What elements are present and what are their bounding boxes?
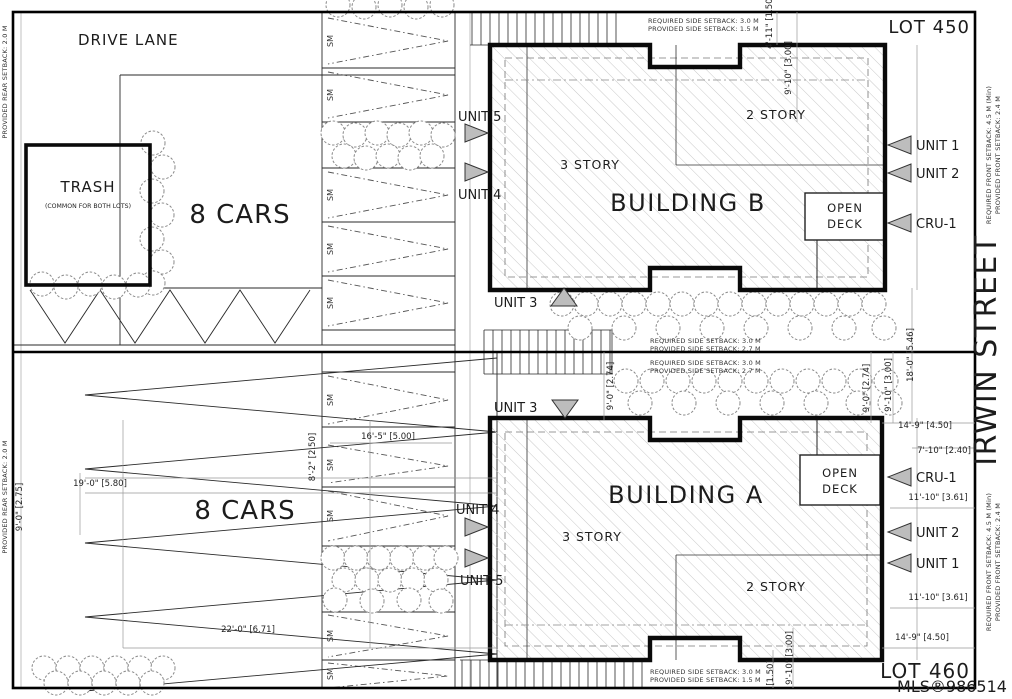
bush bbox=[365, 121, 389, 145]
building-b-3story: 3 STORY bbox=[560, 157, 620, 172]
unit-5-a-label: UNIT 5 bbox=[460, 574, 503, 589]
bush bbox=[822, 369, 846, 393]
bottom-walk-hatch bbox=[462, 660, 642, 688]
bush bbox=[332, 144, 356, 168]
setback-mid-lower-required: REQUIRED SIDE SETBACK: 3.0 M bbox=[650, 359, 761, 367]
bush bbox=[397, 588, 421, 612]
bush bbox=[832, 316, 856, 340]
dim-right-14-9-bottom: 14'-9" [4.50] bbox=[895, 633, 949, 643]
bush bbox=[116, 671, 140, 695]
building-b-deck-deck: DECK bbox=[827, 217, 863, 231]
building-a-deck-open: OPEN bbox=[822, 466, 858, 480]
bush bbox=[68, 671, 92, 695]
bush bbox=[378, 568, 402, 592]
bush bbox=[150, 203, 174, 227]
bush bbox=[646, 292, 670, 316]
bush bbox=[44, 671, 68, 695]
bush bbox=[622, 292, 646, 316]
bush bbox=[343, 123, 367, 147]
bush bbox=[760, 391, 784, 415]
irwin-street-label: IRWIN STREET bbox=[969, 234, 1004, 465]
dim-park-22-0: 22'-0" [6.71] bbox=[221, 625, 275, 635]
dim-right-18-0: 18'-0" [5.46] bbox=[906, 328, 916, 382]
bush bbox=[54, 275, 78, 299]
bush bbox=[718, 292, 742, 316]
bush bbox=[141, 131, 165, 155]
bush bbox=[413, 546, 437, 570]
setback-mid-upper-provided: PROVIDED SIDE SETBACK: 2.7 M bbox=[650, 345, 761, 353]
bush bbox=[367, 546, 391, 570]
bush bbox=[862, 292, 886, 316]
sm-stall-label: SM bbox=[326, 510, 335, 522]
bush bbox=[670, 292, 694, 316]
setback-mid-upper-required: REQUIRED SIDE SETBACK: 3.0 M bbox=[650, 337, 761, 345]
bush bbox=[140, 179, 164, 203]
setback-front-bottom-required: REQUIRED FRONT SETBACK: 4.5 M (Min) bbox=[985, 493, 993, 631]
bush bbox=[429, 589, 453, 613]
bush bbox=[612, 316, 636, 340]
building-a-footprint bbox=[490, 418, 882, 660]
dim-right-9-0: 9'-0" [2.74] bbox=[862, 364, 872, 412]
bush bbox=[344, 546, 368, 570]
sm-stall-label: SM bbox=[326, 394, 335, 406]
dim-right-14-9-top: 14'-9" [4.50] bbox=[898, 421, 952, 431]
setback-front-top-required: REQUIRED FRONT SETBACK: 4.5 M (Min) bbox=[985, 86, 993, 224]
unit-3-a-label: UNIT 3 bbox=[494, 401, 537, 416]
cru-1-b-label: CRU-1 bbox=[916, 217, 957, 232]
building-a-deck-deck: DECK bbox=[822, 482, 858, 496]
bush bbox=[323, 588, 347, 612]
bush bbox=[404, 0, 428, 19]
dim-park-19-0: 19'-0" [5.80] bbox=[73, 479, 127, 489]
dim-stall-16-5: 16'-5" [5.00] bbox=[361, 432, 415, 442]
sm-stall-label: SM bbox=[326, 459, 335, 471]
bush bbox=[804, 391, 828, 415]
bush bbox=[628, 391, 652, 415]
bush bbox=[431, 123, 455, 147]
unit-2-a-label: UNIT 2 bbox=[916, 526, 959, 541]
building-a-name: BUILDING A bbox=[608, 481, 764, 509]
bush bbox=[568, 316, 592, 340]
bush bbox=[387, 123, 411, 147]
bush bbox=[321, 546, 345, 570]
bush bbox=[352, 0, 376, 19]
site-plan-page: DRIVE LANE LOT 450 LOT 460 IRWIN STREET … bbox=[0, 0, 1012, 699]
setback-mid-lower-provided: PROVIDED SIDE SETBACK: 2.7 M bbox=[650, 367, 761, 375]
dim-right-11-10-bottom: 11'-10" [3.61] bbox=[908, 593, 967, 603]
setback-front-top-provided: PROVIDED FRONT SETBACK: 2.4 M bbox=[994, 96, 1002, 214]
building-b-footprint bbox=[490, 45, 885, 290]
bush bbox=[814, 292, 838, 316]
sm-stall-label: SM bbox=[326, 630, 335, 642]
bush bbox=[360, 589, 384, 613]
setback-bottom-required: REQUIRED SIDE SETBACK: 3.0 M bbox=[650, 668, 761, 676]
bush bbox=[140, 227, 164, 251]
drive-lane-label: DRIVE LANE bbox=[78, 31, 179, 49]
dim-bottom-a: [1.50] bbox=[766, 660, 776, 686]
bush bbox=[770, 369, 794, 393]
sm-stall-label: SM bbox=[326, 243, 335, 255]
unit-3-b-label: UNIT 3 bbox=[494, 296, 537, 311]
bush bbox=[424, 568, 448, 592]
bush bbox=[694, 292, 718, 316]
unit-4-a-label: UNIT 4 bbox=[456, 503, 499, 518]
unit-2-b-label: UNIT 2 bbox=[916, 167, 959, 182]
dim-right-7-10: 7'-10" [2.40] bbox=[917, 446, 971, 456]
bush bbox=[355, 568, 379, 592]
building-b-name: BUILDING B bbox=[610, 189, 766, 217]
sm-stall-label: SM bbox=[326, 297, 335, 309]
bush bbox=[434, 546, 458, 570]
dim-top-a: 4'-11" [1.50] bbox=[765, 0, 775, 49]
dim-mid-stairs: 9'-0" [2.74] bbox=[606, 362, 616, 410]
sm-stall-label: SM bbox=[326, 668, 335, 680]
bush bbox=[409, 121, 433, 145]
cars-bottom-label: 8 CARS bbox=[194, 496, 295, 526]
dim-bottom-b: 9'-10" [3.00] bbox=[785, 631, 795, 685]
sm-stall-label: SM bbox=[326, 89, 335, 101]
building-b-deck-open: OPEN bbox=[827, 201, 863, 215]
dim-top-b: 9'-10" [3.00] bbox=[784, 41, 794, 95]
bush bbox=[376, 144, 400, 168]
lot-450-label: LOT 450 bbox=[888, 17, 970, 38]
dim-left-9-0: 9'-0" [2.75] bbox=[15, 483, 25, 531]
bush bbox=[92, 671, 116, 695]
bush bbox=[354, 146, 378, 170]
setback-bottom-provided: PROVIDED SIDE SETBACK: 1.5 M bbox=[650, 676, 761, 684]
bush bbox=[872, 316, 896, 340]
bush bbox=[150, 250, 174, 274]
bush bbox=[838, 292, 862, 316]
bush bbox=[742, 292, 766, 316]
mls-watermark: MLS®986514 bbox=[897, 677, 1007, 696]
bush bbox=[151, 155, 175, 179]
bush bbox=[796, 369, 820, 393]
building-b-2story: 2 STORY bbox=[746, 107, 806, 122]
cars-top-label: 8 CARS bbox=[189, 200, 290, 230]
dim-right-11-10-top: 11'-10" [3.61] bbox=[908, 493, 967, 503]
bush bbox=[321, 121, 345, 145]
bush bbox=[766, 292, 790, 316]
bush bbox=[102, 275, 126, 299]
bush bbox=[672, 391, 696, 415]
sm-stall-label: SM bbox=[326, 189, 335, 201]
bush bbox=[788, 316, 812, 340]
setback-top-provided: PROVIDED SIDE SETBACK: 1.5 M bbox=[648, 25, 759, 33]
building-a-3story: 3 STORY bbox=[562, 529, 622, 544]
dim-stall-8-2: 8'-2" [2.50] bbox=[308, 433, 318, 481]
unit-1-a-label: UNIT 1 bbox=[916, 557, 959, 572]
unit-5-b-label: UNIT 5 bbox=[458, 110, 501, 125]
setback-rear-top: PROVIDED REAR SETBACK: 2.0 M bbox=[1, 25, 9, 138]
bush bbox=[398, 146, 422, 170]
bush bbox=[140, 671, 164, 695]
site-plan-drawing: DRIVE LANE LOT 450 LOT 460 IRWIN STREET … bbox=[0, 0, 1012, 699]
trash-enclosure-fill bbox=[26, 145, 150, 285]
cru-1-a-label: CRU-1 bbox=[916, 471, 957, 486]
building-a-open-deck bbox=[800, 455, 880, 505]
bush bbox=[390, 546, 414, 570]
setback-top-required: REQUIRED SIDE SETBACK: 3.0 M bbox=[648, 17, 759, 25]
bush bbox=[420, 144, 444, 168]
unit-1-b-label: UNIT 1 bbox=[916, 139, 959, 154]
setback-rear-bottom: PROVIDED REAR SETBACK: 2.0 M bbox=[1, 440, 9, 553]
dim-right-9-10: 9'-10" [3.00] bbox=[884, 358, 894, 412]
bush bbox=[790, 292, 814, 316]
bush bbox=[598, 292, 622, 316]
trash-label: TRASH bbox=[59, 178, 115, 196]
unit-4-b-label: UNIT 4 bbox=[458, 188, 501, 203]
bush bbox=[614, 369, 638, 393]
building-a-2story: 2 STORY bbox=[746, 579, 806, 594]
setback-front-bottom-provided: PROVIDED FRONT SETBACK: 2.4 M bbox=[994, 503, 1002, 621]
bush bbox=[716, 391, 740, 415]
trash-sub-label: (COMMON FOR BOTH LOTS) bbox=[45, 203, 131, 210]
bush bbox=[574, 292, 598, 316]
sm-stall-label: SM bbox=[326, 35, 335, 47]
